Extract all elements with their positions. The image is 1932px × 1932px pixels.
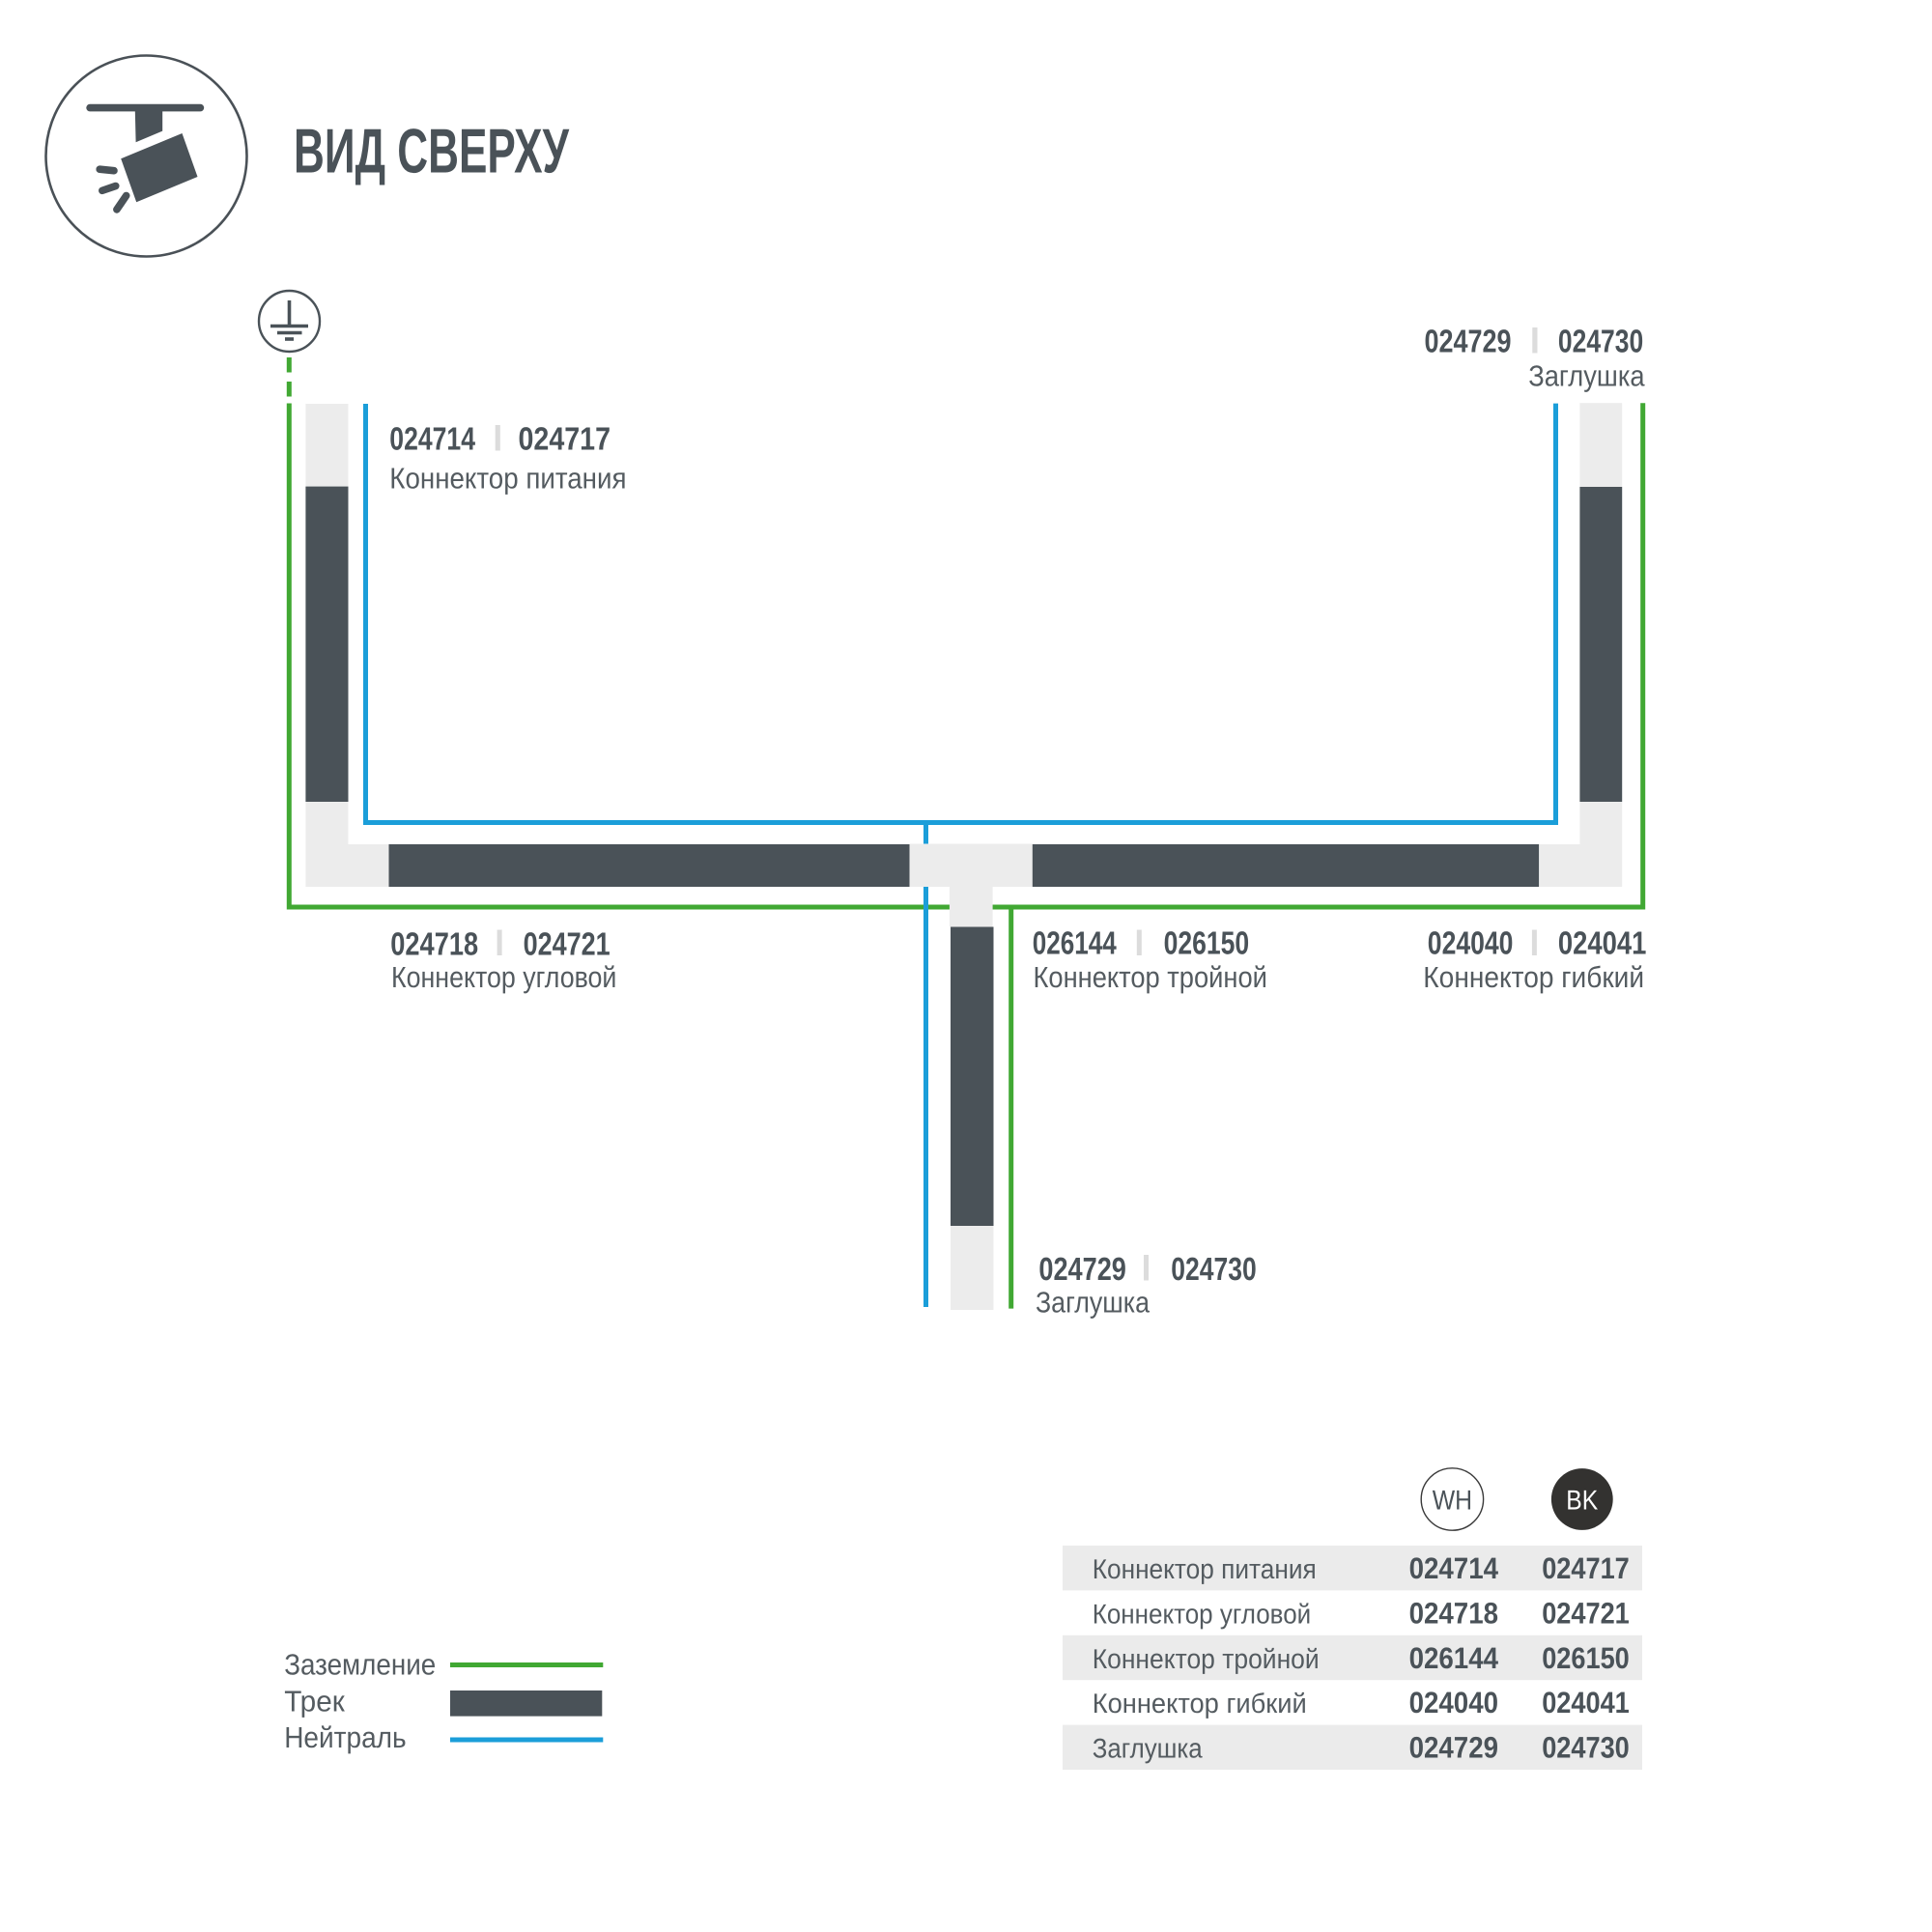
svg-text:Трек: Трек: [284, 1686, 345, 1719]
svg-text:024729: 024729: [1409, 1731, 1498, 1765]
svg-text:BK: BK: [1566, 1486, 1598, 1517]
svg-text:Коннектор угловой: Коннектор угловой: [391, 961, 616, 994]
svg-text:Заземление: Заземление: [284, 1648, 436, 1681]
svg-text:024721: 024721: [524, 926, 611, 962]
svg-text:026144: 026144: [1409, 1641, 1499, 1675]
svg-text:024730: 024730: [1542, 1731, 1630, 1765]
svg-text:024040: 024040: [1409, 1686, 1498, 1719]
svg-text:Коннектор гибкий: Коннектор гибкий: [1423, 961, 1644, 994]
svg-text:024714: 024714: [389, 422, 475, 458]
svg-text:Коннектор гибкий: Коннектор гибкий: [1093, 1689, 1307, 1719]
svg-text:Нейтраль: Нейтраль: [284, 1721, 406, 1754]
svg-text:024729: 024729: [1038, 1252, 1126, 1288]
svg-text:024721: 024721: [1542, 1596, 1630, 1630]
svg-text:024041: 024041: [1542, 1686, 1630, 1719]
svg-text:ВИД СВЕРХУ: ВИД СВЕРХУ: [294, 116, 570, 186]
svg-text:Коннектор тройной: Коннектор тройной: [1093, 1644, 1320, 1675]
svg-text:Коннектор угловой: Коннектор угловой: [1093, 1599, 1312, 1630]
svg-text:024040: 024040: [1428, 926, 1514, 962]
svg-text:Коннектор питания: Коннектор питания: [389, 463, 626, 496]
svg-text:026144: 026144: [1033, 926, 1117, 962]
svg-text:Заглушка: Заглушка: [1093, 1734, 1203, 1765]
svg-text:024717: 024717: [519, 422, 611, 458]
svg-text:024730: 024730: [1558, 325, 1643, 360]
svg-text:Коннектор питания: Коннектор питания: [1093, 1554, 1317, 1585]
svg-text:024718: 024718: [1409, 1596, 1498, 1630]
svg-text:Заглушка: Заглушка: [1036, 1286, 1150, 1319]
svg-text:024717: 024717: [1542, 1551, 1630, 1585]
svg-text:024730: 024730: [1171, 1252, 1256, 1288]
svg-text:024041: 024041: [1558, 926, 1647, 962]
svg-text:024714: 024714: [1409, 1551, 1499, 1585]
svg-text:026150: 026150: [1542, 1641, 1630, 1675]
svg-text:026150: 026150: [1164, 926, 1250, 962]
svg-text:024718: 024718: [390, 926, 478, 962]
svg-text:WH: WH: [1433, 1486, 1472, 1517]
svg-text:024729: 024729: [1425, 325, 1512, 360]
svg-text:Заглушка: Заглушка: [1528, 359, 1644, 392]
svg-text:Коннектор тройной: Коннектор тройной: [1034, 961, 1267, 994]
